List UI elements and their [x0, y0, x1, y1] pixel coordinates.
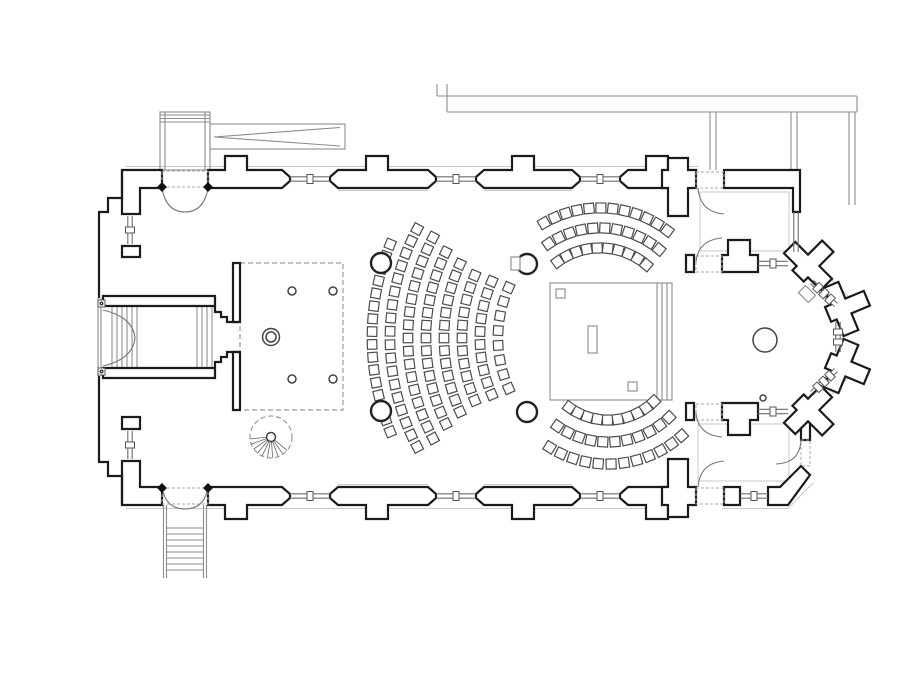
chair — [475, 340, 485, 350]
apse-floor-circles — [753, 328, 777, 401]
chair — [607, 203, 618, 214]
chair — [386, 353, 396, 363]
chair — [369, 301, 380, 312]
chair — [409, 384, 421, 396]
chair — [422, 307, 433, 318]
north-vestry-door-threshold — [696, 172, 724, 188]
gallery-post — [329, 287, 337, 295]
doors — [103, 171, 810, 509]
chair — [396, 260, 408, 272]
chair — [389, 379, 400, 390]
chair — [494, 310, 505, 321]
chair — [602, 415, 612, 425]
chair — [439, 246, 452, 259]
west-door-threshold — [98, 298, 101, 376]
chair — [654, 444, 668, 458]
platform-outline — [550, 283, 672, 400]
apse-floor-circle — [760, 395, 766, 401]
nave-column — [371, 401, 391, 421]
wall-halo-lines — [126, 167, 856, 509]
chair — [368, 352, 378, 362]
chair — [478, 364, 489, 375]
gallery-posts — [288, 287, 337, 383]
window-mullion — [834, 339, 843, 345]
chair — [427, 432, 440, 445]
chair — [439, 320, 449, 330]
chair — [459, 307, 470, 318]
chair — [406, 371, 417, 382]
chair — [461, 370, 472, 381]
chair — [384, 426, 396, 438]
chair — [442, 295, 453, 306]
chair — [421, 346, 431, 356]
northwest-corner-pier — [122, 170, 162, 214]
chair — [368, 314, 378, 324]
tower-north-wall-band — [103, 296, 215, 306]
chair — [481, 287, 493, 299]
chair — [440, 358, 451, 369]
tower-flight-steps — [197, 307, 212, 367]
chancel-south-door-swing — [696, 413, 722, 437]
chair — [409, 280, 421, 292]
gallery-post — [288, 375, 296, 383]
chair — [430, 394, 442, 406]
nave-north-wall — [122, 156, 800, 257]
nave-column — [517, 402, 537, 422]
window-mullion — [126, 227, 135, 233]
south-wall-pier — [476, 487, 580, 519]
chair — [468, 269, 480, 281]
chair — [611, 224, 623, 236]
chair — [464, 281, 476, 293]
west-wall-south-segment — [122, 417, 140, 429]
chair — [430, 270, 442, 282]
chair — [581, 243, 593, 255]
south-wall-pier — [620, 487, 668, 519]
chair — [571, 204, 583, 216]
gallery-west-wall-south — [233, 352, 240, 410]
chair — [584, 203, 595, 214]
south-porch-threshold — [162, 488, 208, 504]
chair — [424, 370, 435, 381]
platform-steps — [657, 283, 667, 400]
chair — [593, 458, 604, 469]
gallery-post — [329, 375, 337, 383]
chair — [554, 447, 567, 460]
chancel-south-door-threshold — [696, 404, 722, 420]
chair — [476, 313, 487, 324]
chair — [592, 243, 602, 253]
gallery-west-wall-north — [233, 263, 240, 322]
chair — [427, 382, 439, 394]
chair — [619, 205, 631, 217]
chair — [404, 307, 415, 318]
south-vestry-door-threshold — [696, 488, 724, 504]
chair — [439, 418, 452, 431]
north-wall-pier — [476, 156, 580, 188]
chancel-arch-pier-south — [662, 459, 696, 517]
west-door-pivot — [100, 370, 103, 373]
chair — [442, 370, 453, 381]
chair — [481, 376, 493, 388]
south-vestry-wall-segment — [724, 487, 740, 505]
chair — [457, 333, 467, 343]
south-porch-door-swings — [162, 488, 208, 509]
chair — [370, 288, 381, 299]
chair — [434, 406, 446, 418]
north-porch-outline — [160, 112, 210, 170]
west-tower — [98, 170, 240, 505]
north-wall-pier — [330, 156, 436, 188]
chair — [412, 396, 424, 408]
chair — [602, 243, 613, 254]
chair — [403, 320, 413, 330]
chair — [502, 281, 515, 294]
chair — [621, 434, 633, 446]
chair — [588, 223, 599, 234]
spiral-tread — [271, 442, 272, 458]
window-mullion — [307, 492, 313, 501]
chair — [439, 333, 449, 343]
chair — [486, 275, 499, 288]
chair — [445, 382, 457, 394]
window-mullion — [770, 259, 776, 268]
chair — [476, 352, 487, 363]
chair — [403, 346, 413, 356]
chair — [630, 208, 643, 221]
gallery-post — [288, 287, 296, 295]
chair — [387, 366, 398, 377]
tower-south-wall-band — [103, 368, 215, 378]
chair — [427, 231, 440, 244]
chair — [421, 243, 434, 256]
north-porch — [160, 112, 345, 170]
chair — [498, 369, 510, 381]
chair — [406, 293, 417, 304]
nave-column — [371, 253, 391, 273]
south-porch-stair — [167, 528, 204, 570]
halo-line — [126, 167, 856, 509]
south-porch — [164, 505, 207, 578]
chancel-south-pier — [722, 403, 758, 435]
north-porch-threshold — [162, 171, 208, 187]
north-wall-pier — [620, 156, 668, 188]
chair — [367, 340, 377, 350]
chair — [622, 226, 635, 239]
chair — [400, 247, 412, 259]
chair — [449, 394, 461, 406]
chair — [567, 452, 580, 465]
spiral-stair — [250, 416, 292, 458]
south-wall-pier — [208, 487, 290, 519]
choir-seating-south — [543, 394, 689, 469]
chair — [454, 258, 467, 271]
chair — [618, 457, 629, 468]
window-mullion — [307, 175, 313, 184]
chair — [389, 286, 400, 297]
chair — [440, 307, 451, 318]
chair — [606, 459, 616, 469]
window-sill-lines — [338, 191, 572, 485]
chair — [502, 382, 515, 395]
chair — [598, 437, 609, 448]
gallery-ring-column — [263, 329, 280, 346]
chancel-north-door-jamb — [686, 255, 694, 272]
west-gallery — [240, 263, 343, 410]
chair — [457, 320, 467, 330]
window-mullion — [751, 492, 757, 501]
chair — [449, 270, 461, 282]
chair — [385, 340, 395, 350]
chair — [421, 320, 431, 330]
chair — [454, 406, 467, 419]
window-mullion — [126, 442, 135, 448]
south-wall-pier — [330, 487, 436, 519]
altar-furniture — [588, 326, 597, 353]
chair — [421, 420, 434, 433]
chair — [459, 358, 470, 369]
chair — [385, 326, 395, 336]
access-ramp-slope — [214, 128, 340, 147]
north-porch-steps — [160, 112, 210, 170]
chair — [493, 340, 503, 350]
chair — [411, 223, 424, 236]
chancel-platform — [550, 283, 672, 400]
apse-floor-circle — [753, 328, 777, 352]
chair — [404, 359, 415, 370]
chair — [457, 346, 467, 356]
chair — [369, 365, 380, 376]
south-porch-walls — [164, 505, 207, 578]
chair — [543, 440, 557, 454]
west-door-pivot — [100, 302, 103, 305]
chair — [461, 294, 472, 305]
chair — [370, 377, 381, 388]
chair — [642, 450, 655, 463]
chair — [367, 327, 377, 337]
chair — [675, 429, 689, 443]
chair — [573, 431, 586, 444]
windows — [126, 175, 843, 501]
window-mullion — [453, 492, 459, 501]
chair — [405, 429, 418, 442]
chair — [405, 235, 418, 248]
chair — [392, 273, 404, 285]
chair — [387, 299, 398, 310]
chancel-north-door-threshold — [696, 256, 722, 272]
chair — [632, 430, 645, 443]
chair — [478, 300, 489, 311]
chair — [373, 389, 384, 400]
chair — [400, 417, 412, 429]
ring-column-inner — [266, 332, 276, 342]
chancel-north-pier — [722, 240, 758, 272]
chair — [422, 358, 433, 369]
chair — [600, 223, 611, 234]
chair — [416, 255, 428, 267]
south-vestry-door-swing — [698, 461, 724, 487]
east-vestry-door-threshold — [801, 440, 810, 466]
chair — [386, 313, 396, 323]
west-portal-door-swings — [103, 310, 135, 366]
chancel-south-door-jamb — [686, 403, 694, 420]
spiral-tread — [250, 437, 266, 438]
chair — [486, 388, 499, 401]
chair — [665, 437, 679, 451]
chair — [392, 392, 404, 404]
chair — [373, 275, 384, 286]
west-front-stepped-profile — [99, 170, 122, 505]
chair — [416, 409, 428, 421]
chair — [592, 413, 603, 424]
chair — [475, 327, 485, 337]
chair — [384, 238, 396, 250]
floor-plan-page — [0, 0, 900, 675]
chair — [610, 436, 621, 447]
window-mullion — [834, 329, 843, 335]
chair — [494, 355, 505, 366]
west-wall-north-segment — [122, 246, 140, 257]
chair — [411, 440, 424, 453]
west-entry-steps — [112, 307, 137, 367]
spiral-stair-newel — [267, 433, 276, 442]
chair — [403, 333, 413, 343]
window-mullion — [597, 175, 603, 184]
chair — [439, 346, 449, 356]
chair — [445, 282, 457, 294]
chair — [434, 258, 446, 270]
chair — [427, 282, 439, 294]
chair — [468, 394, 480, 406]
chair — [580, 456, 592, 468]
platform-furniture — [556, 289, 637, 391]
chair — [596, 203, 606, 213]
choir-seating-north — [537, 203, 674, 272]
chair — [563, 227, 576, 240]
altar-furniture — [628, 382, 637, 391]
lectern — [511, 257, 520, 270]
north-wall-pier — [208, 156, 290, 188]
chair — [412, 268, 424, 280]
southwest-corner-pier — [122, 461, 162, 505]
chair — [498, 296, 510, 308]
gallery-dashed-outline — [240, 263, 343, 410]
north-porch-door-swings — [162, 188, 208, 212]
chair — [421, 333, 431, 343]
chair — [559, 207, 572, 220]
chair — [493, 326, 503, 336]
church-floor-plan — [0, 0, 900, 675]
window-mullion — [597, 492, 603, 501]
chair — [396, 404, 408, 416]
chair — [464, 382, 476, 394]
chair — [630, 454, 642, 466]
chair — [585, 434, 597, 446]
window-mullion — [453, 175, 459, 184]
chair — [575, 224, 587, 236]
altar-furniture — [556, 289, 565, 298]
window-mullion — [770, 407, 776, 416]
chair — [424, 295, 435, 306]
